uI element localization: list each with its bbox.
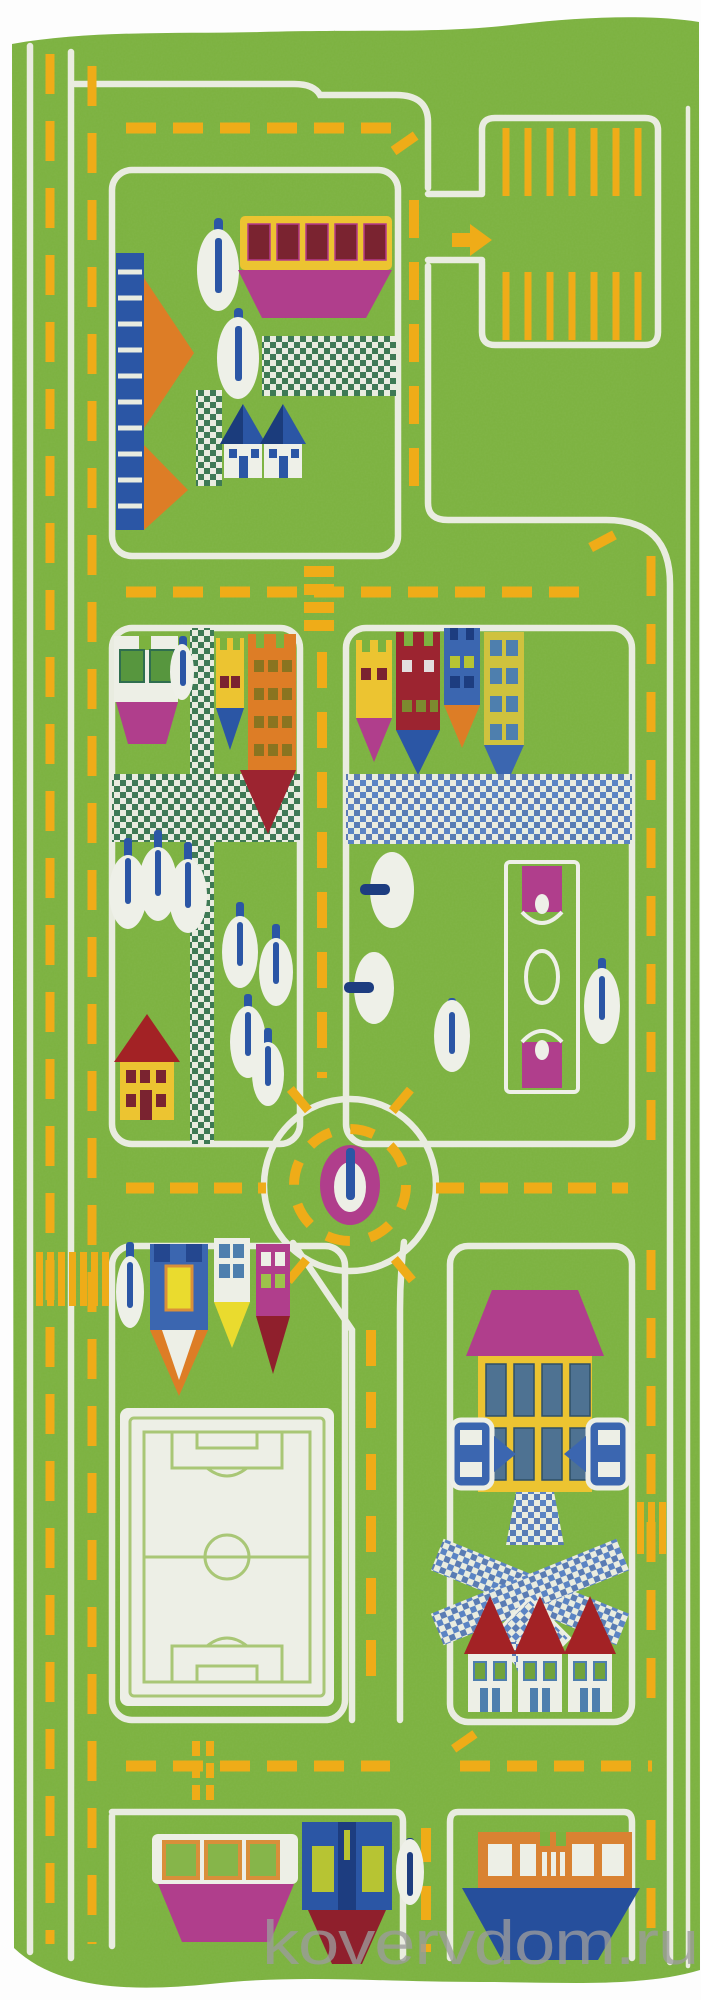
soccer-field — [120, 1408, 334, 1706]
watermark-text: kovervdom.ru — [262, 1909, 698, 1978]
roundabout-island — [320, 1145, 380, 1225]
small-red-roof-houses — [464, 1596, 616, 1712]
checker-plaza — [262, 336, 396, 396]
school-bus-building — [238, 216, 392, 318]
checker-path — [196, 390, 222, 486]
ladder — [116, 253, 144, 530]
white-building — [114, 636, 178, 744]
orange-tower — [248, 634, 296, 770]
checker-band-blue — [346, 774, 632, 844]
play-rug-illustration: kovervdom.ru — [0, 0, 701, 2000]
rug-product-photo: kovervdom.ru — [0, 0, 701, 2000]
right-road-crossing-cluster — [637, 1502, 666, 1554]
